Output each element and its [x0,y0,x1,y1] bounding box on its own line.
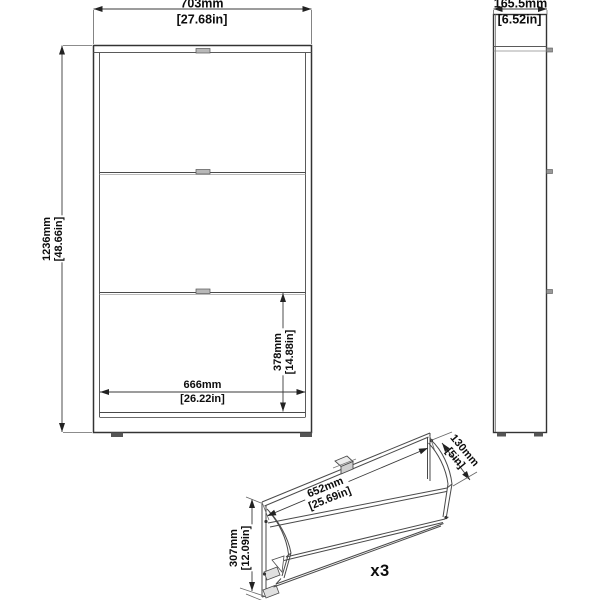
cabinet-side-outline [494,15,547,433]
front-height-dim-mm: 1236mm [42,217,54,262]
flap-height-dim: 307mm [12.09in] [229,524,253,571]
side-handle-1 [547,48,553,52]
pin-left-top [264,520,267,523]
panel-bottom-foot [263,585,279,598]
front-foot-right [300,433,312,438]
compartment-height-dim: 378mm [14.88in] [273,329,297,376]
front-foot-left [111,433,123,438]
drawing-linework [0,0,600,600]
compartment-height-dim-mm: 378mm [273,330,285,375]
flap-height-dim-in: [12.09in] [241,525,253,570]
side-view [494,9,553,437]
technical-drawing-canvas: 703mm [27.68in] 165.5mm [6.52in] 1236mm … [0,0,600,600]
front-width-dim-in: [27.68in] [177,13,228,27]
side-foot-back [497,433,506,437]
pin-right-bottom [444,516,447,519]
front-inner-width-dim-in: [26.22in] [180,394,225,406]
side-handle-3 [547,290,553,294]
flap-3d-view [240,432,477,600]
side-handle-2 [547,170,553,174]
flap-quantity-label: x3 [370,563,389,581]
side-foot-front [534,433,543,437]
compartment-height-dim-in: [14.88in] [285,330,297,375]
side-depth-dim-mm: 165.5mm [494,0,548,11]
flap-handle-3 [196,289,210,294]
pin-left-bottom [263,572,266,575]
trough-mid-edge-inner [284,523,443,561]
flap-handle-1 [196,49,210,54]
ext-line-307-t [246,497,261,503]
front-height-dim: 1236mm [48.66in] [42,216,66,263]
front-inner-width-dim-mm: 666mm [184,380,222,392]
trough-top-edge-inner [270,492,447,528]
flap-handle-2 [196,170,210,175]
front-height-dim-in: [48.66in] [54,217,66,262]
side-depth-dim-in: [6.52in] [498,13,542,27]
left-bracket-arm-inner [270,512,289,554]
front-width-dim-mm: 703mm [180,0,223,11]
